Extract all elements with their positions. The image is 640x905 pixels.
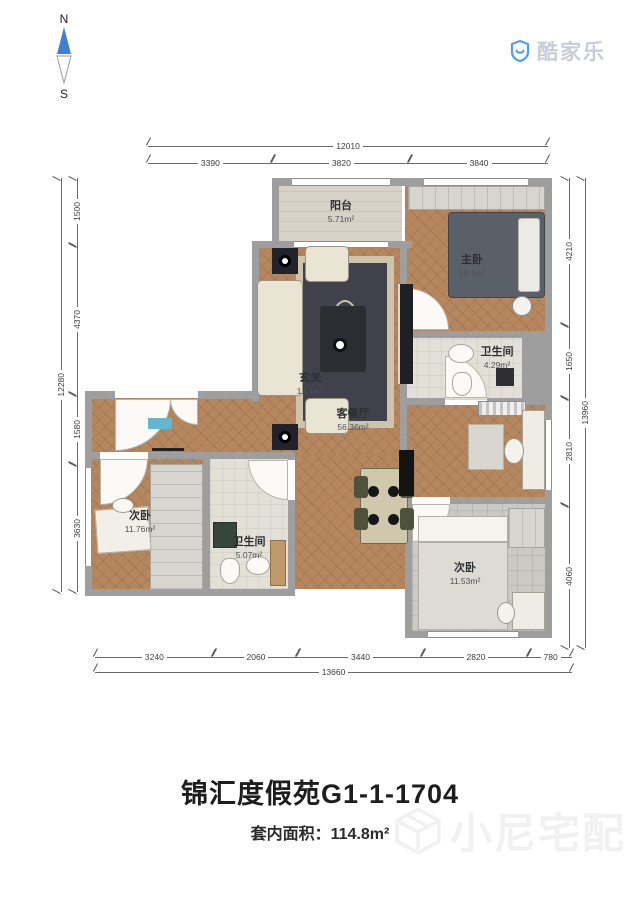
dim-label: 4060 — [564, 567, 574, 586]
right-bedroom-cabinet — [508, 508, 545, 548]
master-speaker — [512, 296, 532, 316]
room-name: 主卧 — [459, 254, 485, 268]
dim-label: 780 — [544, 652, 558, 662]
dim-label: 2820 — [467, 652, 486, 662]
armchair-top — [305, 246, 349, 282]
study-desk — [522, 410, 545, 490]
shoe-bench — [152, 448, 184, 451]
bathroom2-toilet — [220, 558, 240, 584]
dim-bottom-segments: 3240 2060 3440 2820 780 — [95, 652, 572, 662]
dim-label: 3840 — [470, 158, 489, 168]
dim-label: 3240 — [145, 652, 164, 662]
area-value: 114.8m² — [331, 826, 390, 843]
dining-plate — [368, 514, 379, 525]
room-label-master-bedroom: 主卧 18.1m² — [459, 254, 485, 278]
right-bedroom-chair — [497, 602, 515, 624]
logo-text: 酷家乐 — [537, 36, 606, 66]
wall — [288, 500, 295, 596]
room-label-entry: 玄关 1.01m² — [297, 372, 323, 396]
compass: N S — [52, 12, 76, 101]
dim-top-total: 12010 — [148, 141, 548, 151]
bathroom-sink — [448, 344, 474, 363]
room-name: 次卧 — [450, 562, 481, 576]
dining-plate — [368, 486, 379, 497]
study-chair — [504, 438, 524, 464]
bathroom-toilet — [452, 372, 472, 396]
logo-shield-icon — [508, 39, 532, 63]
wall — [85, 589, 295, 596]
kitchen-counter — [399, 450, 414, 496]
compass-south-label: S — [52, 87, 76, 101]
dim-top-segments: 3390 3820 3840 — [148, 158, 548, 168]
entry-mat — [148, 418, 172, 429]
speaker-bottom-cone — [279, 431, 291, 443]
wall — [85, 452, 100, 459]
room-area: 18.1m² — [459, 268, 485, 279]
compass-north-label: N — [52, 12, 76, 26]
dim-label: 4210 — [564, 242, 574, 261]
wall — [198, 391, 259, 399]
left-bedroom-wardrobe — [150, 464, 203, 590]
study-rug — [468, 424, 504, 470]
master-wardrobe — [408, 186, 545, 210]
room-name: 客餐厅 — [337, 408, 370, 422]
room-area: 5.07m² — [233, 550, 266, 561]
window — [424, 178, 528, 186]
wall — [400, 331, 552, 338]
window — [85, 468, 92, 566]
dim-right-segments: 4210 1650 2810 4060 — [564, 178, 574, 648]
dining-chair — [354, 476, 368, 498]
wall — [450, 497, 552, 504]
room-area: 4.29m² — [481, 360, 514, 371]
room-name: 阳台 — [328, 200, 354, 214]
wall — [545, 504, 552, 638]
dining-chair — [400, 508, 414, 530]
dim-label: 3390 — [201, 158, 220, 168]
speaker-top-cone — [279, 255, 291, 267]
room-label-balcony: 阳台 5.71m² — [328, 200, 354, 224]
dim-label: 1580 — [72, 420, 82, 439]
room-label-left-bedroom: 次卧 11.76m² — [125, 510, 156, 534]
bathroom-cabinet — [496, 368, 514, 386]
room-area: 56.36m² — [337, 422, 370, 433]
dining-chair — [354, 508, 368, 530]
window — [428, 631, 518, 638]
dim-right-total: 13960 — [580, 178, 590, 648]
room-area: 11.53m² — [450, 576, 481, 587]
compass-needle-icon — [53, 26, 75, 84]
bathroom2-cabinet — [270, 540, 286, 586]
dim-left-segments: 1500 4370 1580 3630 — [72, 178, 82, 592]
dim-label: 4370 — [72, 310, 82, 329]
dim-label: 2060 — [247, 652, 266, 662]
wall — [203, 452, 210, 596]
right-bedroom-desk — [512, 592, 545, 630]
dim-label: 2810 — [564, 442, 574, 461]
window — [545, 420, 552, 490]
plan-area-text: 套内面积：114.8m² — [0, 820, 640, 844]
dim-label: 3820 — [332, 158, 351, 168]
dining-plate — [388, 486, 399, 497]
duct-shaft — [522, 338, 545, 400]
master-bed-pillows — [518, 218, 540, 292]
room-name: 卫生间 — [481, 346, 514, 360]
floor-plan-page: N S 酷家乐 12010 3390 3820 3840 12280 1500 … — [0, 0, 640, 905]
room-name: 玄关 — [297, 372, 323, 386]
room-area: 11.76m² — [125, 524, 156, 535]
radiator — [478, 401, 526, 416]
wall — [148, 452, 295, 459]
dim-label: 3440 — [351, 652, 370, 662]
room-area: 5.71m² — [328, 214, 354, 225]
room-label-living-dining: 客餐厅 56.36m² — [337, 408, 370, 432]
area-label: 套内面积： — [251, 826, 331, 843]
room-name: 次卧 — [125, 510, 156, 524]
room-name: 卫生间 — [233, 536, 266, 550]
dim-label: 12280 — [56, 373, 66, 397]
window — [292, 178, 390, 186]
wall — [272, 178, 279, 248]
room-label-master-bathroom: 卫生间 4.29m² — [481, 346, 514, 370]
wall — [400, 241, 407, 288]
dim-label: 1500 — [72, 202, 82, 221]
dim-label: 13960 — [580, 401, 590, 425]
wall — [400, 398, 445, 405]
coffee-table-plate — [333, 338, 347, 352]
right-bed-pillows — [418, 516, 508, 542]
dim-bottom-total: 13660 — [95, 667, 572, 677]
room-label-second-bathroom: 卫生间 5.07m² — [233, 536, 266, 560]
tv-cabinet — [398, 284, 413, 384]
room-area: 1.01m² — [297, 386, 323, 397]
dining-plate — [388, 514, 399, 525]
wall — [288, 452, 295, 460]
dim-label: 13660 — [322, 667, 346, 677]
app-logo: 酷家乐 — [508, 36, 606, 66]
dim-left-total: 12280 — [56, 178, 66, 592]
dim-label: 3630 — [72, 519, 82, 538]
room-label-right-bedroom: 次卧 11.53m² — [450, 562, 481, 586]
dim-label: 1650 — [564, 352, 574, 371]
dim-label: 12010 — [336, 141, 360, 151]
